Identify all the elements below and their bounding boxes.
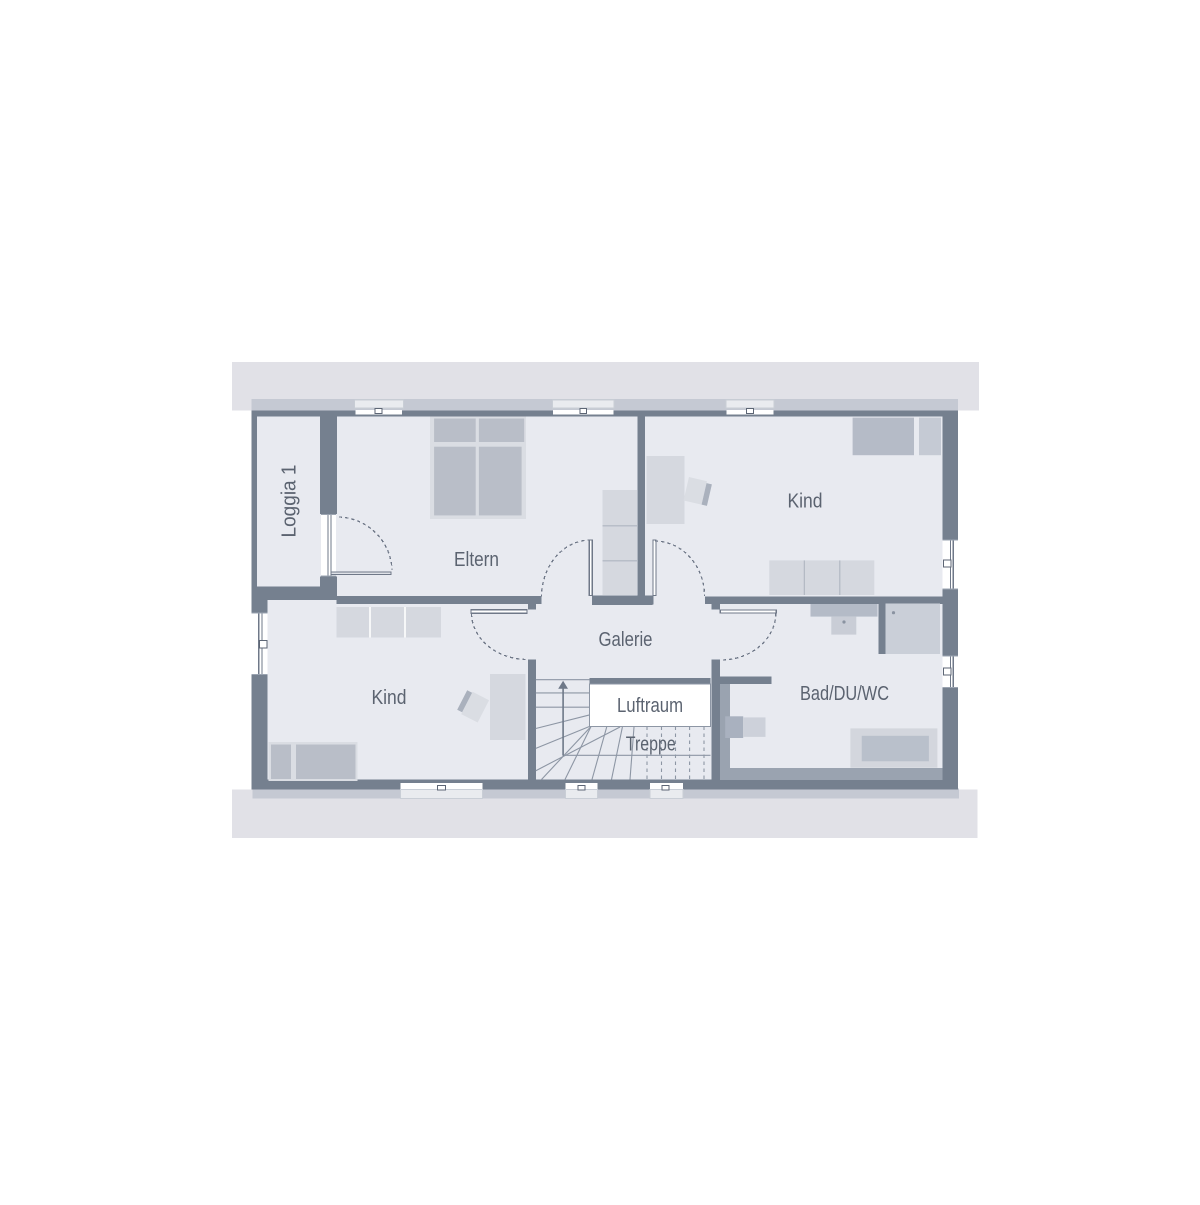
svg-text:Treppe: Treppe [626,733,676,756]
svg-text:Kind: Kind [788,490,823,513]
svg-text:Bad/DU/WC: Bad/DU/WC [800,682,889,705]
svg-text:Loggia 1: Loggia 1 [278,465,301,538]
svg-text:Luftraum: Luftraum [617,694,683,717]
svg-text:Galerie: Galerie [599,628,653,651]
svg-text:Kind: Kind [372,686,407,709]
svg-text:Eltern: Eltern [454,548,499,571]
